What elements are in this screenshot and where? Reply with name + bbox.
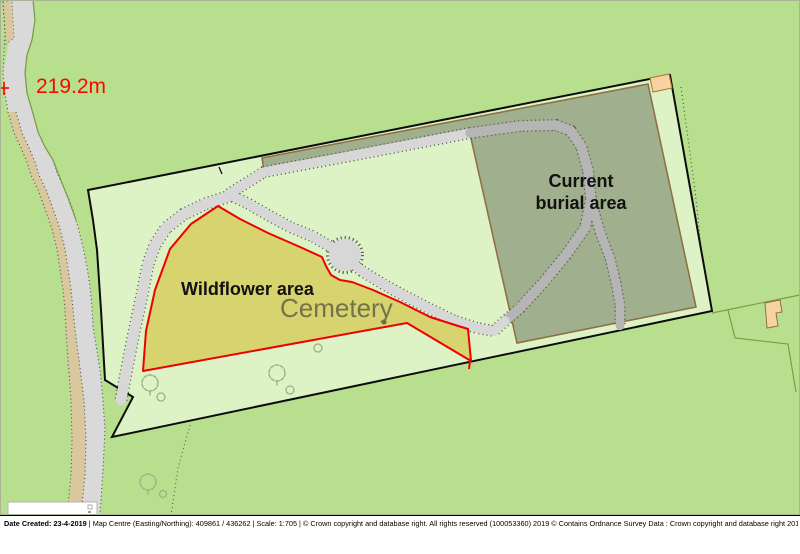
footer-date: Date Created: 23-4-2019 [4,519,89,528]
cropped-label-box [8,502,97,515]
footer-text: Date Created: 23-4-2019 | Map Centre (Ea… [4,519,798,528]
wildflower-spur [469,361,470,369]
map-canvas: 219.2m Wildflower area Cemetery Current … [0,0,800,515]
footer-details: | Map Centre (Easting/Northing): 409861 … [89,519,798,528]
turning-circle [329,239,361,271]
boundary-dot [382,320,387,325]
map-graphics [0,0,800,515]
footer-bar: Date Created: 23-4-2019 | Map Centre (Ea… [0,515,800,554]
map-screenshot: 219.2m Wildflower area Cemetery Current … [0,0,800,554]
